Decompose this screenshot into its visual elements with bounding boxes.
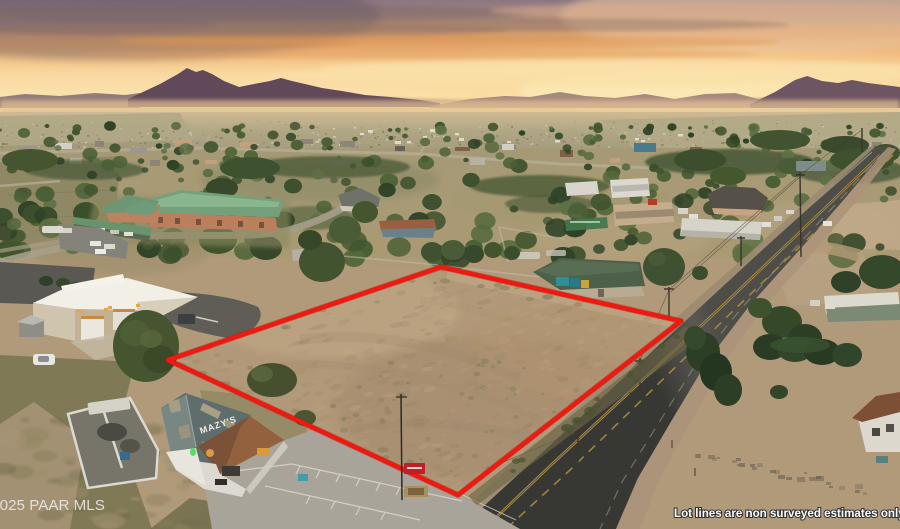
svg-text:©2025 PAAR MLS: ©2025 PAAR MLS [0,497,105,514]
svg-text:Lot lines are non surveyed est: Lot lines are non surveyed estimates onl… [674,507,900,520]
